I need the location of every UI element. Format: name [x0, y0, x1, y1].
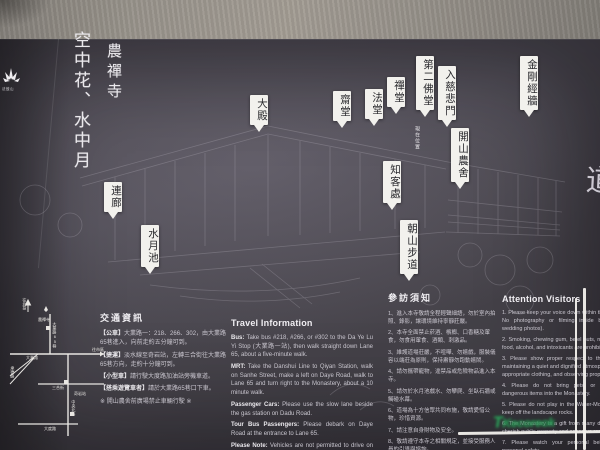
building-label: 朝山步道	[400, 220, 418, 274]
building-label: 開山農舍	[451, 128, 469, 182]
travel-info-block: Travel Information Bus: Take bus #218, #…	[231, 317, 373, 450]
traffic-items: 【公車】大業路一：218、266、302，由大業路65巷進入，向前走約五分鐘可到…	[100, 330, 228, 395]
guidelines-title: 參訪須知	[388, 292, 500, 306]
building-label: 知客處	[383, 161, 401, 203]
map-label: 奇岩站	[74, 392, 86, 396]
traffic-note: ※ 開山農舍前廣場禁止車輛行駛 ※	[100, 398, 228, 407]
calligraphy-motto: 空中花、水中月	[72, 31, 89, 179]
wall-shadow	[0, 0, 120, 40]
travel-item: MRT: Take the Danshui Line to Qiyan Stat…	[231, 363, 373, 398]
travel-item: Bus: Take bus #218, #266, or #302 to the…	[231, 334, 373, 360]
building-label: 法堂	[365, 89, 383, 119]
street-map: 往北投農禪寺大業路65巷大業路往市區承德路三合街奇岩站中央北路大度路	[8, 296, 110, 446]
guideline-item: 8、敬請遵守本寺之相關規定，並接受服務人員的引導與諮詢。	[388, 438, 500, 450]
lotus-icon	[2, 66, 22, 86]
current-location-label: 現在位置	[406, 126, 420, 150]
travel-item: Tour Bus Passengers: Please debark on Da…	[231, 421, 373, 438]
photo-watermark: TKecoreok	[493, 413, 555, 432]
travel-items: Bus: Take bus #218, #266, or #302 to the…	[231, 334, 373, 450]
foreground-wire	[583, 288, 586, 450]
traffic-item: 【公車】大業路一：218、266、302，由大業路65巷進入，向前走約五分鐘可到…	[100, 330, 228, 349]
traffic-info-title: 交通資訊	[100, 312, 228, 326]
map-label: 中央北路	[71, 400, 75, 416]
map-label: 三合街	[52, 386, 64, 390]
building-label: 水月池	[141, 225, 159, 267]
traffic-item: 【搭乘遊覽車者】請於大業路65巷口下車。	[100, 385, 228, 394]
building-label: 入慈悲門	[438, 66, 456, 120]
building-label: 大殿	[250, 95, 268, 125]
map-label: 大度路	[44, 427, 56, 431]
building-label: 連廊	[104, 182, 122, 212]
building-label: 第二佛堂	[416, 56, 434, 110]
temple-name: 農禪寺	[105, 43, 120, 123]
traffic-info-block: 交通資訊 【公車】大業路一：218、266、302，由大業路65巷進入，向前走約…	[100, 312, 228, 410]
dharma-drum-logo: 法鼓山	[2, 66, 28, 92]
travel-item: Passenger Cars: Please use the slow lane…	[231, 401, 373, 418]
foreground-wire	[575, 298, 577, 450]
travel-info-title: Travel Information	[231, 317, 373, 330]
logo-caption: 法鼓山	[2, 87, 28, 92]
guidelines-block: 參訪須知 1、進入本寺敬請全程輕聲細語，勿於室內拍照、錄影，讓環境維持寧靜莊嚴。…	[388, 292, 500, 450]
building-label: 金剛經牆	[520, 56, 538, 110]
map-label: 往北投	[22, 298, 26, 310]
building-label: 禪堂	[387, 77, 405, 107]
guideline-item: 4、請勿攜帶寵物，違禁品或危險物品進入本寺。	[388, 368, 500, 385]
edge-calligraphy-glyph: 道	[585, 155, 600, 201]
map-roads	[8, 296, 110, 446]
guideline-item: 6、道場為十方信眾共同布施，敬請愛惜公物，珍惜資源。	[388, 407, 500, 424]
traffic-item: 【小型車】請行駛大度路加油站旁機車道。	[100, 373, 228, 382]
travel-item: Please Note: Vehicles are not permitted …	[231, 442, 373, 450]
guideline-items: 1、進入本寺敬請全程輕聲細語，勿於室內拍照、錄影，讓環境維持寧靜莊嚴。2、本寺全…	[388, 310, 500, 450]
photo-of-temple-sign: 法鼓山 空中花、水中月 農禪寺 大殿齋堂法堂禪堂第二佛堂入慈悲門金剛經牆開山農舍…	[0, 0, 600, 450]
guideline-item: 5、請勿於水月池戲水、勿攀爬、坐臥石牆或觸碰水幕。	[388, 388, 500, 405]
map-label: 大業路65巷	[52, 322, 56, 348]
building-label: 齋堂	[333, 91, 351, 121]
guideline-item: 3、維護道場莊嚴，不喧嘩、勿嬉戲，服裝儀容以端莊為原則，保持肅靜勿跑動嬉鬧。	[388, 349, 500, 366]
map-label: 農禪寺	[38, 318, 50, 322]
map-label: 承德路	[10, 366, 14, 378]
guideline-item: 1、進入本寺敬請全程輕聲細語，勿於室內拍照、錄影，讓環境維持寧靜莊嚴。	[388, 310, 500, 327]
guideline-item: 2、本寺全面禁止菸酒、檳榔、口香糖及葷食，勿食用葷食、酒類、刺激品。	[388, 329, 500, 346]
traffic-item: 【捷運】淡水線至奇岩站，左轉三合街往大業路65巷方向，走約十分鐘可到。	[100, 352, 228, 371]
map-label: 大業路	[26, 356, 38, 360]
